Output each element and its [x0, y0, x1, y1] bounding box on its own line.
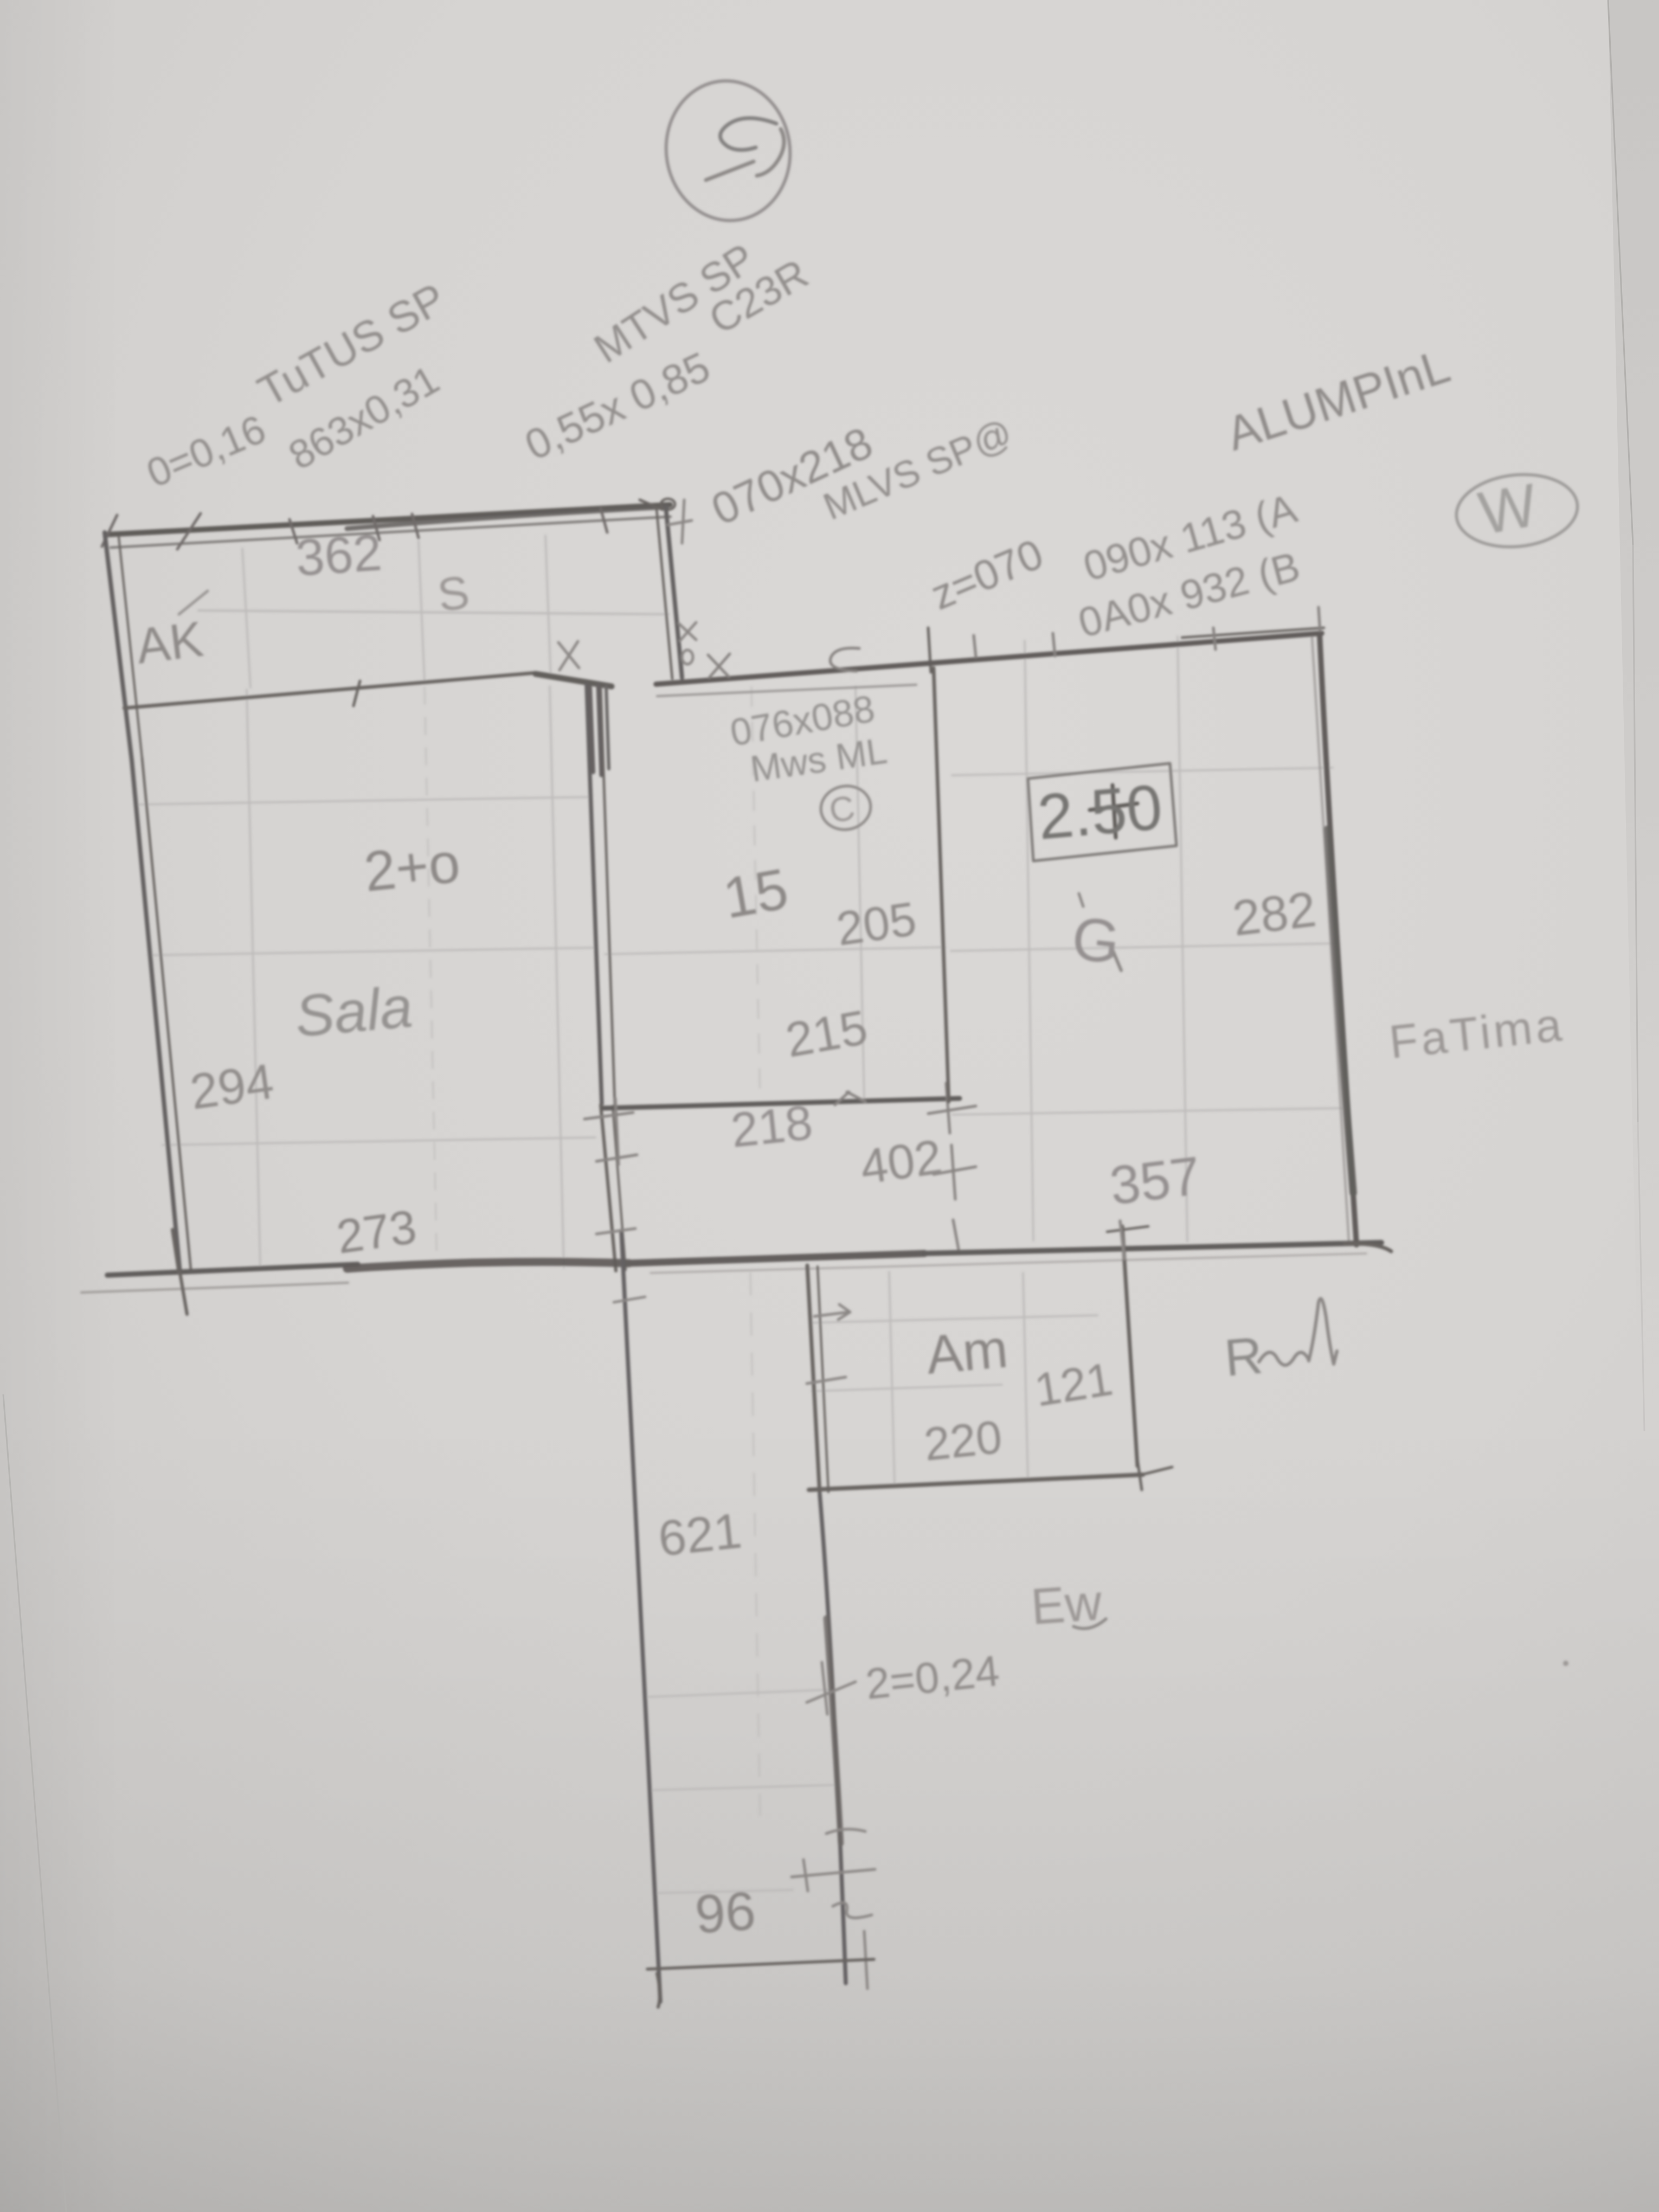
svg-text:220: 220 [922, 1411, 1005, 1470]
svg-text:205: 205 [833, 891, 919, 955]
svg-text:Am: Am [924, 1318, 1010, 1386]
svg-text:357: 357 [1107, 1145, 1204, 1217]
svg-text:294: 294 [187, 1053, 277, 1120]
svg-text:R: R [1223, 1326, 1265, 1387]
svg-text:621: 621 [655, 1503, 744, 1566]
svg-text:2+o: 2+o [361, 831, 463, 904]
svg-text:273: 273 [333, 1199, 420, 1263]
svg-text:362: 362 [294, 524, 384, 587]
svg-text:Ew: Ew [1029, 1573, 1104, 1635]
svg-text:W: W [1474, 471, 1542, 548]
svg-text:2.50: 2.50 [1035, 771, 1165, 853]
svg-text:15: 15 [719, 857, 793, 931]
svg-text:218: 218 [729, 1096, 815, 1158]
svg-text:282: 282 [1230, 882, 1319, 947]
svg-text:402: 402 [857, 1130, 946, 1195]
svg-text:Sala: Sala [292, 974, 415, 1049]
svg-text:96: 96 [693, 1880, 757, 1945]
svg-text:G: G [1069, 904, 1123, 976]
svg-text:AK: AK [133, 612, 206, 674]
